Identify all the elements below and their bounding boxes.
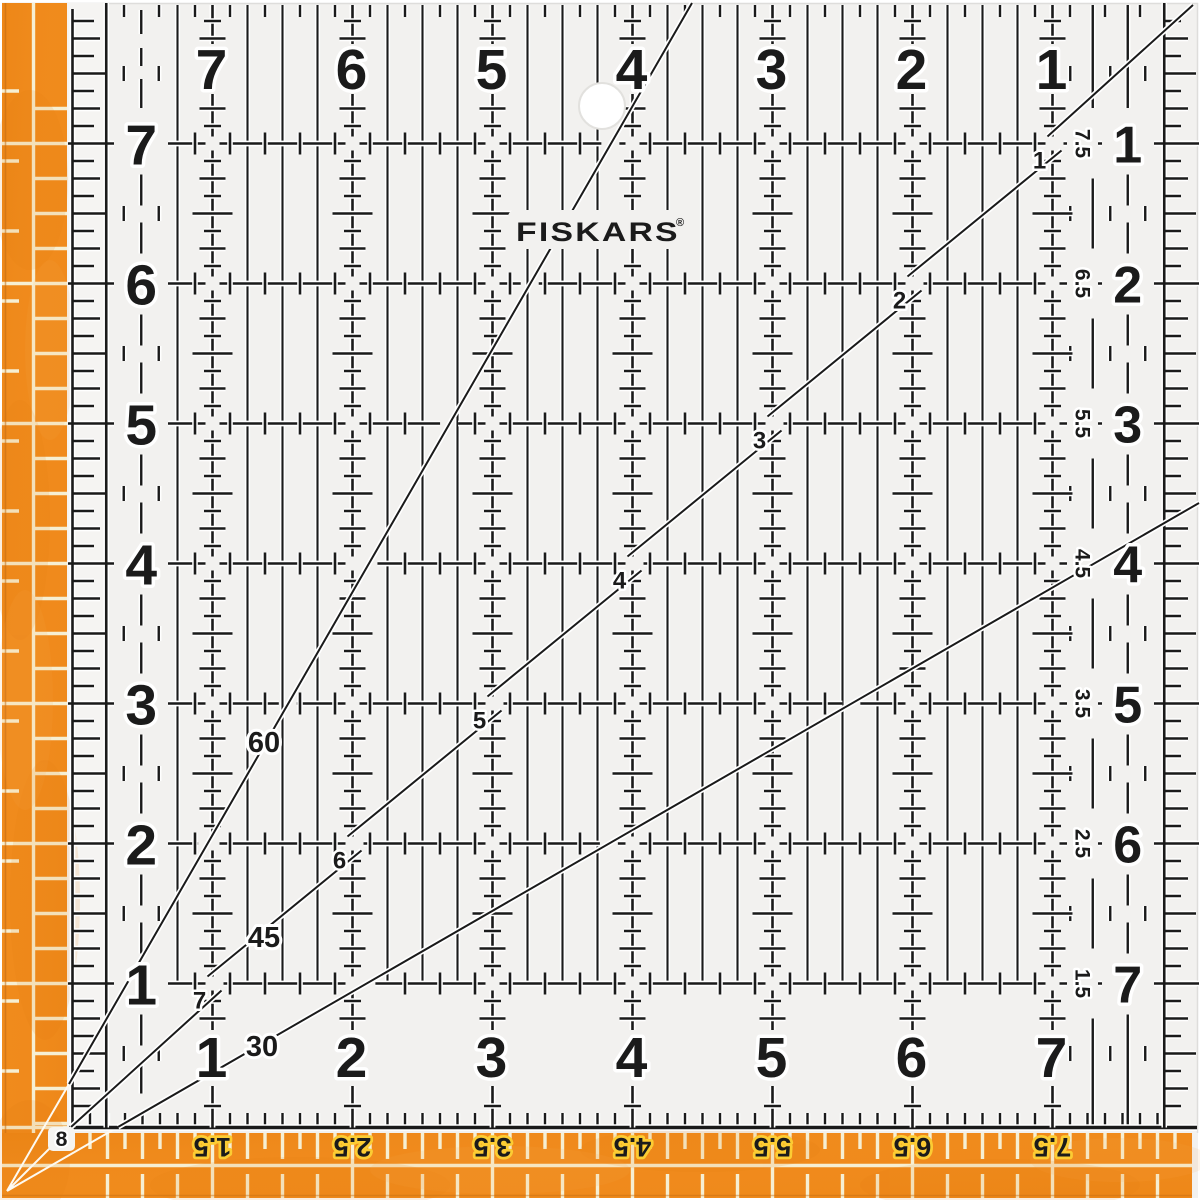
svg-text:2.5: 2.5	[334, 1132, 372, 1162]
svg-text:45: 45	[248, 922, 280, 954]
svg-text:1: 1	[1036, 38, 1068, 102]
svg-text:6: 6	[125, 254, 157, 318]
svg-text:5: 5	[473, 708, 486, 735]
svg-text:4: 4	[616, 38, 648, 102]
svg-text:7.5: 7.5	[1071, 129, 1094, 159]
svg-text:2: 2	[893, 288, 906, 315]
svg-text:6.5: 6.5	[894, 1132, 932, 1162]
svg-text:7: 7	[1036, 1026, 1068, 1090]
svg-text:1: 1	[1113, 117, 1142, 175]
svg-text:6: 6	[896, 1026, 928, 1090]
svg-text:7: 7	[1113, 957, 1142, 1015]
svg-text:3: 3	[476, 1026, 508, 1090]
svg-text:4.5: 4.5	[614, 1132, 652, 1162]
svg-text:1.5: 1.5	[194, 1132, 232, 1162]
svg-text:7: 7	[196, 38, 228, 102]
svg-text:4: 4	[613, 568, 627, 595]
svg-text:4: 4	[616, 1026, 648, 1090]
svg-text:4: 4	[1113, 537, 1142, 595]
svg-text:5: 5	[476, 38, 508, 102]
svg-text:3.5: 3.5	[474, 1132, 512, 1162]
svg-text:3.5: 3.5	[1071, 689, 1094, 719]
svg-text:1: 1	[1033, 148, 1046, 175]
svg-text:2: 2	[896, 38, 928, 102]
svg-text:6: 6	[1113, 817, 1142, 875]
svg-text:1: 1	[196, 1026, 228, 1090]
svg-text:FISKARS: FISKARS	[516, 217, 680, 247]
svg-text:6: 6	[336, 38, 368, 102]
svg-text:1: 1	[125, 954, 157, 1018]
svg-text:2: 2	[125, 814, 157, 878]
svg-text:®: ®	[676, 217, 684, 229]
svg-text:8: 8	[56, 1127, 68, 1151]
svg-text:5: 5	[1113, 677, 1142, 735]
svg-text:6: 6	[333, 848, 346, 875]
svg-text:3: 3	[756, 38, 788, 102]
svg-text:3: 3	[1113, 397, 1142, 455]
svg-text:5: 5	[125, 394, 157, 458]
svg-text:7: 7	[125, 114, 157, 178]
svg-text:7.5: 7.5	[1034, 1132, 1072, 1162]
svg-text:2: 2	[336, 1026, 368, 1090]
svg-text:60: 60	[248, 727, 280, 759]
svg-text:5.5: 5.5	[1071, 409, 1094, 439]
svg-text:6.5: 6.5	[1071, 269, 1094, 299]
svg-text:4: 4	[125, 534, 157, 598]
svg-text:4.5: 4.5	[1071, 549, 1094, 579]
svg-text:3: 3	[753, 428, 766, 455]
svg-text:5.5: 5.5	[754, 1132, 792, 1162]
svg-text:7: 7	[193, 988, 206, 1015]
svg-text:3: 3	[125, 674, 157, 738]
svg-text:1.5: 1.5	[1071, 969, 1094, 999]
svg-text:2: 2	[1113, 257, 1142, 315]
svg-text:30: 30	[246, 1031, 278, 1063]
svg-text:2.5: 2.5	[1071, 829, 1094, 859]
svg-text:5: 5	[756, 1026, 788, 1090]
